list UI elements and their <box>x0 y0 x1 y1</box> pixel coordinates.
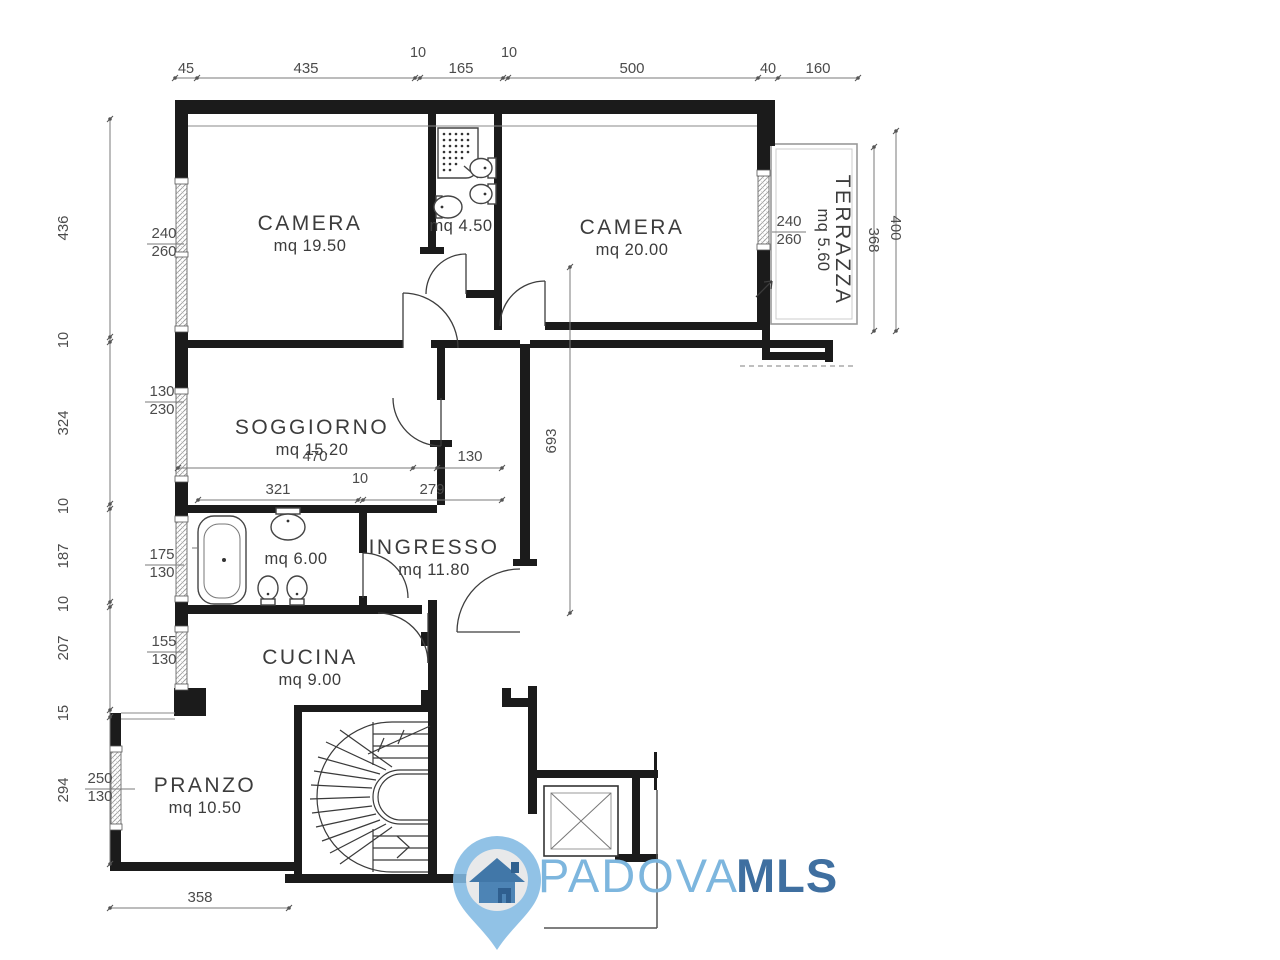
brand-logo: PADOVA MLS <box>453 836 838 950</box>
dim-label: 250 <box>87 770 112 787</box>
room-area-label: mq 20.00 <box>596 241 669 259</box>
logo-name-text: PADOVA <box>538 849 739 902</box>
room-name-label: CAMERA <box>580 216 685 239</box>
door-camera1 <box>403 293 458 348</box>
room-area-label: mq 11.80 <box>398 561 470 579</box>
room-area-label: mq 19.50 <box>274 237 347 255</box>
room-area-label: mq 10.50 <box>169 799 242 817</box>
door-cucina <box>378 613 428 663</box>
spiral-staircase <box>310 722 430 872</box>
doors <box>363 254 772 663</box>
room-area-label: mq 9.00 <box>278 671 341 689</box>
dim-label: 160 <box>805 60 830 77</box>
dim-label: 279 <box>419 481 444 498</box>
dim-label: 10 <box>501 45 517 61</box>
floor-plan: 4543510165105004016043610324101871020715… <box>0 0 1280 960</box>
elevator <box>544 786 618 856</box>
dim-label: 321 <box>265 481 290 498</box>
dim-label: 40 <box>760 61 776 77</box>
dim-label: 130 <box>149 564 174 581</box>
dim-label: 207 <box>55 635 72 660</box>
dim-label: 130 <box>87 788 112 805</box>
window-camera2 <box>757 170 770 250</box>
dim-label: 130 <box>151 651 176 668</box>
room-area-label: mq 5.60 <box>814 208 832 271</box>
dim-line-soggiorno-2 <box>195 497 505 503</box>
dim-label: 230 <box>149 401 174 418</box>
room-name-label: TERRAZZA <box>831 175 854 306</box>
dim-label: 693 <box>543 428 560 453</box>
window-bagno <box>175 516 188 602</box>
toilet2-icon <box>258 576 278 605</box>
door-camera2 <box>500 281 545 326</box>
dim-label: 260 <box>776 231 801 248</box>
dim-label: 358 <box>187 889 212 906</box>
dim-label: 324 <box>55 410 72 435</box>
sink-icon <box>434 196 462 218</box>
dim-label: 240 <box>151 225 176 242</box>
room-name-label: PRANZO <box>154 774 257 797</box>
dim-label: 130 <box>457 448 482 465</box>
dim-line-soggiorno-1 <box>175 465 505 471</box>
bidet2-icon <box>287 576 307 605</box>
room-name-label: INGRESSO <box>369 536 500 559</box>
fixtures <box>192 128 496 605</box>
dim-label: 435 <box>293 60 318 77</box>
room-area-label: mq 15.20 <box>276 441 349 459</box>
dim-label: 10 <box>56 596 72 612</box>
bathtub-icon <box>192 516 246 604</box>
door-soggiorno <box>393 398 441 446</box>
dim-label: 500 <box>619 60 644 77</box>
dim-label: 10 <box>410 45 426 61</box>
dim-label: 45 <box>178 61 194 77</box>
window-camera1 <box>175 178 188 332</box>
room-area-label: mq 6.00 <box>264 550 327 568</box>
dim-label: 436 <box>55 215 72 240</box>
dim-label: 368 <box>865 227 882 252</box>
dim-label: 10 <box>56 498 72 514</box>
map-pin-house-icon <box>453 836 541 950</box>
bidet-icon <box>470 184 496 204</box>
dim-label: 155 <box>151 633 176 650</box>
dim-label: 10 <box>56 332 72 348</box>
room-name-label: CUCINA <box>262 646 358 669</box>
dim-label: 130 <box>149 383 174 400</box>
dim-line-top <box>172 75 861 81</box>
dim-label: 240 <box>776 213 801 230</box>
dim-label: 260 <box>151 243 176 260</box>
dim-line-corridor <box>567 264 573 616</box>
dim-label: 15 <box>56 705 72 721</box>
room-name-label: CAMERA <box>258 212 363 235</box>
sink2-icon <box>271 508 305 540</box>
toilet-icon <box>470 158 496 178</box>
dim-label: 187 <box>55 543 72 568</box>
door-bagno-450 <box>426 254 466 294</box>
dim-label: 400 <box>887 215 904 240</box>
room-name-label: SOGGIORNO <box>235 416 389 439</box>
room-labels: CAMERAmq 19.50CAMERAmq 20.00SOGGIORNOmq … <box>154 175 854 817</box>
dim-label: 10 <box>352 471 368 487</box>
dim-label: 165 <box>448 60 473 77</box>
logo-suffix-text: MLS <box>736 849 838 902</box>
window-cucina <box>175 626 188 690</box>
dim-label: 294 <box>55 777 72 802</box>
room-area-label: mq 4.50 <box>429 217 492 235</box>
dim-label: 175 <box>149 546 174 563</box>
